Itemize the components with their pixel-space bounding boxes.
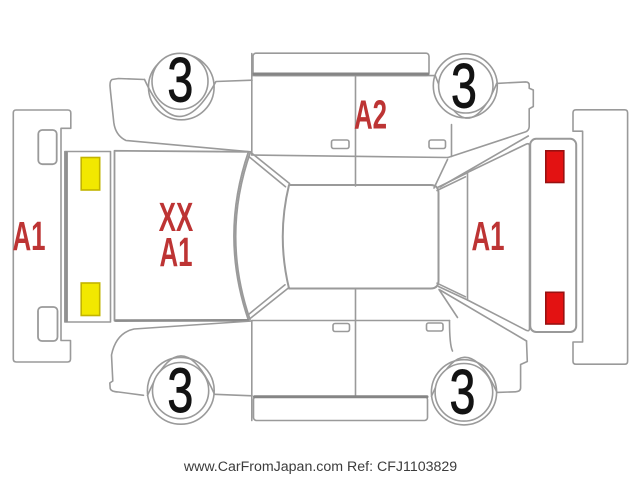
svg-text:3: 3 [451,50,477,120]
svg-text:3: 3 [167,45,193,115]
svg-text:A1: A1 [471,214,504,259]
svg-text:A1: A1 [159,230,192,275]
svg-text:3: 3 [450,357,476,427]
svg-text:A2: A2 [354,93,387,138]
svg-text:www.CarFromJapan.com Ref: CFJ1: www.CarFromJapan.com Ref: CFJ1103829 [183,459,457,475]
svg-text:A1: A1 [12,214,45,259]
svg-text:3: 3 [167,355,193,425]
